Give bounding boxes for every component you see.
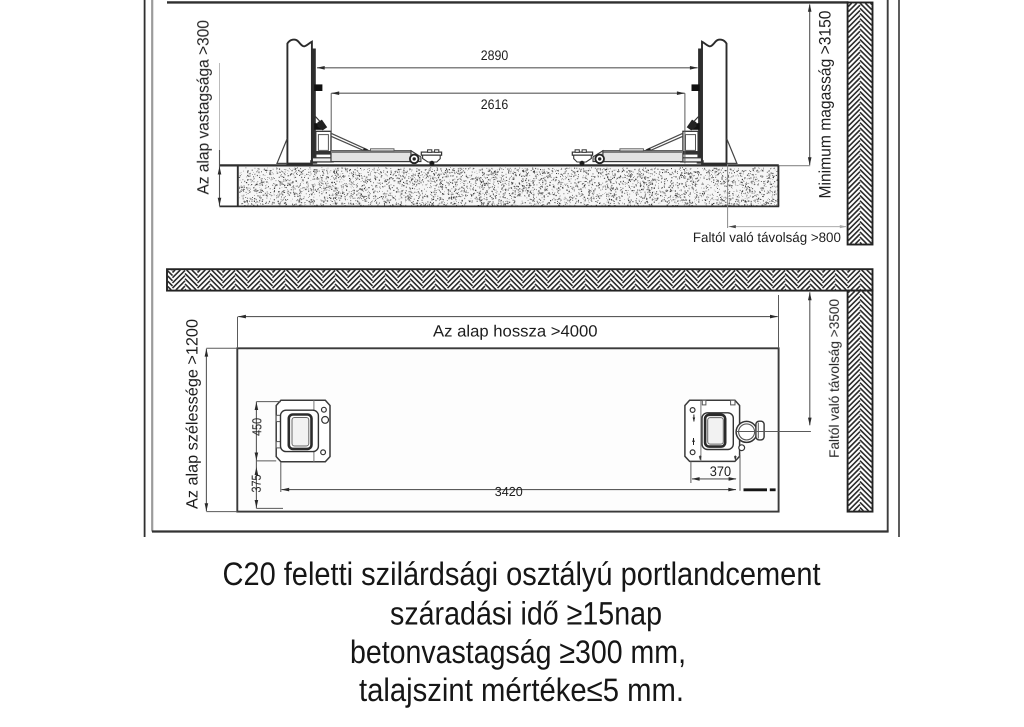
- svg-text:450: 450: [249, 418, 264, 436]
- svg-text:Faltól való távolság >800: Faltól való távolság >800: [693, 230, 841, 245]
- svg-text:betonvastagság ≥300 mm,: betonvastagság ≥300 mm,: [350, 634, 686, 670]
- svg-text:Faltól való távolság >3500: Faltól való távolság >3500: [827, 299, 842, 458]
- svg-text:talajszint mértéke≤5 mm.: talajszint mértéke≤5 mm.: [359, 672, 684, 708]
- svg-text:2890: 2890: [481, 48, 509, 63]
- svg-text:3420: 3420: [495, 484, 523, 499]
- svg-text:Az alap vastagsága >300: Az alap vastagsága >300: [195, 20, 213, 195]
- svg-text:száradási idő ≥15nap: száradási idő ≥15nap: [390, 596, 662, 632]
- svg-text:C20 feletti szilárdsági osztál: C20 feletti szilárdsági osztályú portlan…: [223, 556, 821, 592]
- svg-text:2616: 2616: [481, 97, 509, 112]
- svg-text:Minimum magasság >3150: Minimum magasság >3150: [816, 11, 835, 199]
- svg-text:Az alap szélessége >1200: Az alap szélessége >1200: [184, 319, 202, 509]
- svg-text:Az alap hossza >4000: Az alap hossza >4000: [433, 323, 598, 341]
- svg-text:375: 375: [249, 475, 264, 493]
- svg-text:370: 370: [710, 464, 732, 479]
